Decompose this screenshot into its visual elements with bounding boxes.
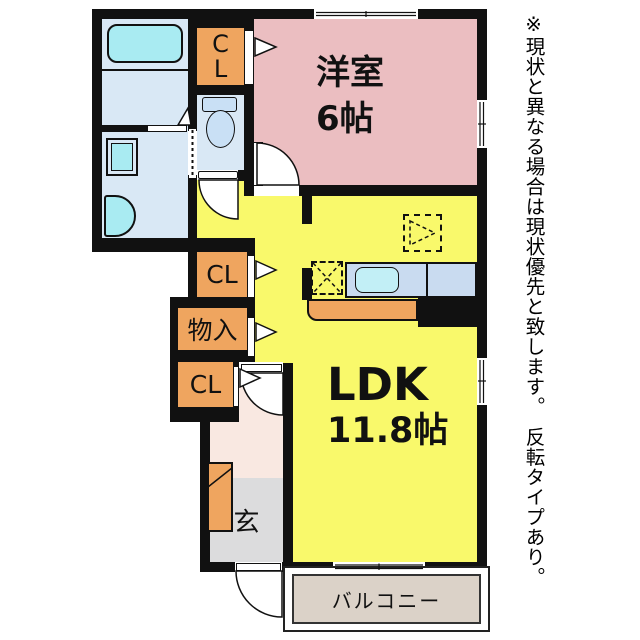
kitchen-lower-counter [307, 299, 418, 321]
wall-segment [170, 350, 255, 362]
room-size: 11.8帖 [327, 410, 448, 452]
toilet-bowl [206, 110, 235, 148]
western-room-label: 洋室 6帖 [316, 50, 384, 142]
closet-in-western-label: C L [197, 32, 244, 82]
wall-segment [299, 185, 487, 196]
closet-middle-door [247, 255, 255, 298]
storage-label: 物入 [178, 308, 247, 350]
wall-segment [92, 238, 255, 252]
storage-door [247, 317, 255, 357]
closet-middle-label: CL [197, 252, 247, 297]
door-arc-entrance [236, 571, 282, 617]
floorplan: 洋室 6帖 LDK 11.8帖 C L CL 物入 CL 玄 バルコニー ※現状… [0, 0, 640, 640]
wall-segment [188, 9, 197, 131]
hall-strip-2 [254, 196, 293, 363]
window-top [314, 9, 418, 19]
hallway-door [241, 364, 282, 372]
room-size: 6帖 [316, 96, 384, 142]
entrance-label: 玄 [210, 478, 283, 562]
room-name: LDK [327, 360, 448, 410]
western-door [253, 142, 263, 186]
room-name: 洋室 [316, 50, 384, 96]
disclaimer-note: ※現状と異なる場合は現状優先と致します。 反転タイプあり。 [518, 13, 548, 628]
wall-segment [302, 196, 312, 224]
western-door-gap [254, 185, 299, 196]
wall-segment [188, 175, 197, 240]
wall-segment [477, 9, 487, 572]
wall-segment [197, 85, 244, 95]
wall-segment [170, 407, 239, 422]
wall-segment [238, 170, 244, 181]
bathroom-door [147, 125, 187, 132]
wall-segment [283, 363, 293, 572]
window-western-right [477, 100, 487, 148]
wall-segment [92, 9, 487, 19]
room-hallway-upper [239, 374, 283, 422]
ldk-label: LDK 11.8帖 [327, 360, 448, 452]
wall-segment [170, 297, 247, 308]
kitchen-sink [355, 267, 399, 293]
bathtub [107, 24, 183, 63]
window-ldk-right [477, 358, 487, 405]
wall-segment [418, 297, 477, 327]
washing-machine [111, 143, 133, 171]
entrance-door [236, 563, 281, 571]
refrigerator-position [403, 214, 442, 252]
kitchen-counter-divider [426, 262, 428, 298]
toilet-door [198, 171, 238, 179]
bathtub-edge-line [102, 69, 188, 71]
wall-segment [92, 125, 147, 132]
stove-position [311, 261, 343, 295]
closet-in-western-door [244, 30, 254, 85]
closet-lower-label: CL [178, 362, 233, 407]
balcony-label: バルコニー [292, 574, 481, 624]
washroom-folding-door [189, 129, 196, 178]
wall-segment [188, 240, 197, 302]
